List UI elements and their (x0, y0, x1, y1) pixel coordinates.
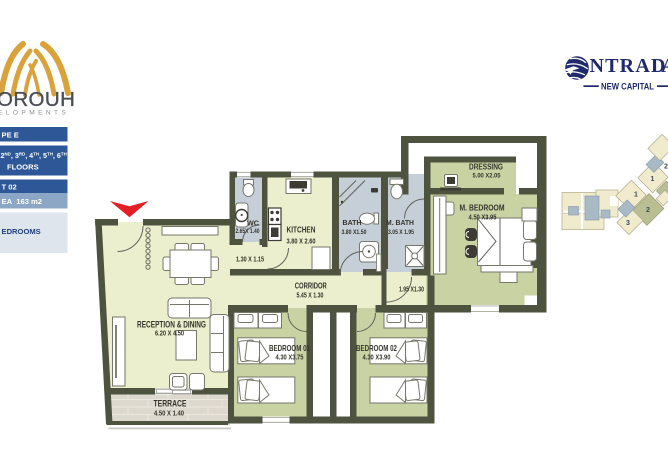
svg-text:WC: WC (247, 219, 260, 228)
svg-text:A: A (662, 55, 668, 77)
svg-text:BEDROOM 01: BEDROOM 01 (269, 343, 310, 353)
svg-text:3.05 X 1.95: 3.05 X 1.95 (388, 229, 414, 236)
svg-text:4.50 X 1.40: 4.50 X 1.40 (154, 409, 184, 418)
svg-text:T 02: T 02 (2, 183, 17, 192)
svg-text:EDROOMS: EDROOMS (2, 227, 41, 236)
svg-text:FLOORS: FLOORS (7, 163, 39, 172)
svg-text:5.00 X2.05: 5.00 X2.05 (473, 173, 501, 180)
svg-text:6.20 X 4.50: 6.20 X 4.50 (155, 329, 184, 338)
svg-text:NEW CAPITAL: NEW CAPITAL (601, 82, 654, 92)
svg-text:4.30 X3.90: 4.30 X3.90 (363, 355, 391, 362)
svg-text:PE E: PE E (2, 131, 19, 140)
svg-text:M. BEDROOM: M. BEDROOM (460, 203, 505, 213)
svg-text:1.30 X 1.15: 1.30 X 1.15 (236, 257, 264, 264)
svg-text:1: 1 (634, 192, 638, 199)
svg-text:DRESSING: DRESSING (469, 163, 503, 172)
svg-text:2: 2 (646, 207, 650, 214)
svg-text:3.80 X1.50: 3.80 X1.50 (342, 229, 367, 236)
svg-text:TERRACE: TERRACE (154, 399, 187, 409)
svg-text:BEDROOM 02: BEDROOM 02 (356, 343, 397, 353)
svg-text:EA 163 m2: EA 163 m2 (2, 197, 43, 206)
svg-text:3: 3 (626, 220, 630, 227)
svg-text:KITCHEN: KITCHEN (287, 225, 316, 235)
svg-text:BATH: BATH (343, 218, 362, 227)
svg-text:CORRIDOR: CORRIDOR (295, 281, 327, 291)
svg-text:4.30 X3.75: 4.30 X3.75 (276, 355, 304, 362)
svg-text:NTRAD: NTRAD (590, 55, 667, 77)
svg-text:2: 2 (664, 164, 668, 171)
svg-text:ELOPMENTS: ELOPMENTS (0, 110, 69, 117)
svg-text:OROUH: OROUH (0, 88, 75, 111)
svg-text:5.45 X 1.30: 5.45 X 1.30 (297, 293, 324, 300)
svg-text:4.50 X3.95: 4.50 X3.95 (469, 215, 497, 222)
svg-text:M. BATH: M. BATH (386, 218, 414, 227)
svg-text:1: 1 (651, 176, 655, 183)
svg-text:2.65X 1.40: 2.65X 1.40 (236, 228, 260, 235)
svg-text:1.95 X1.30: 1.95 X1.30 (399, 287, 424, 294)
svg-text:3.80 X 2.60: 3.80 X 2.60 (287, 239, 316, 246)
